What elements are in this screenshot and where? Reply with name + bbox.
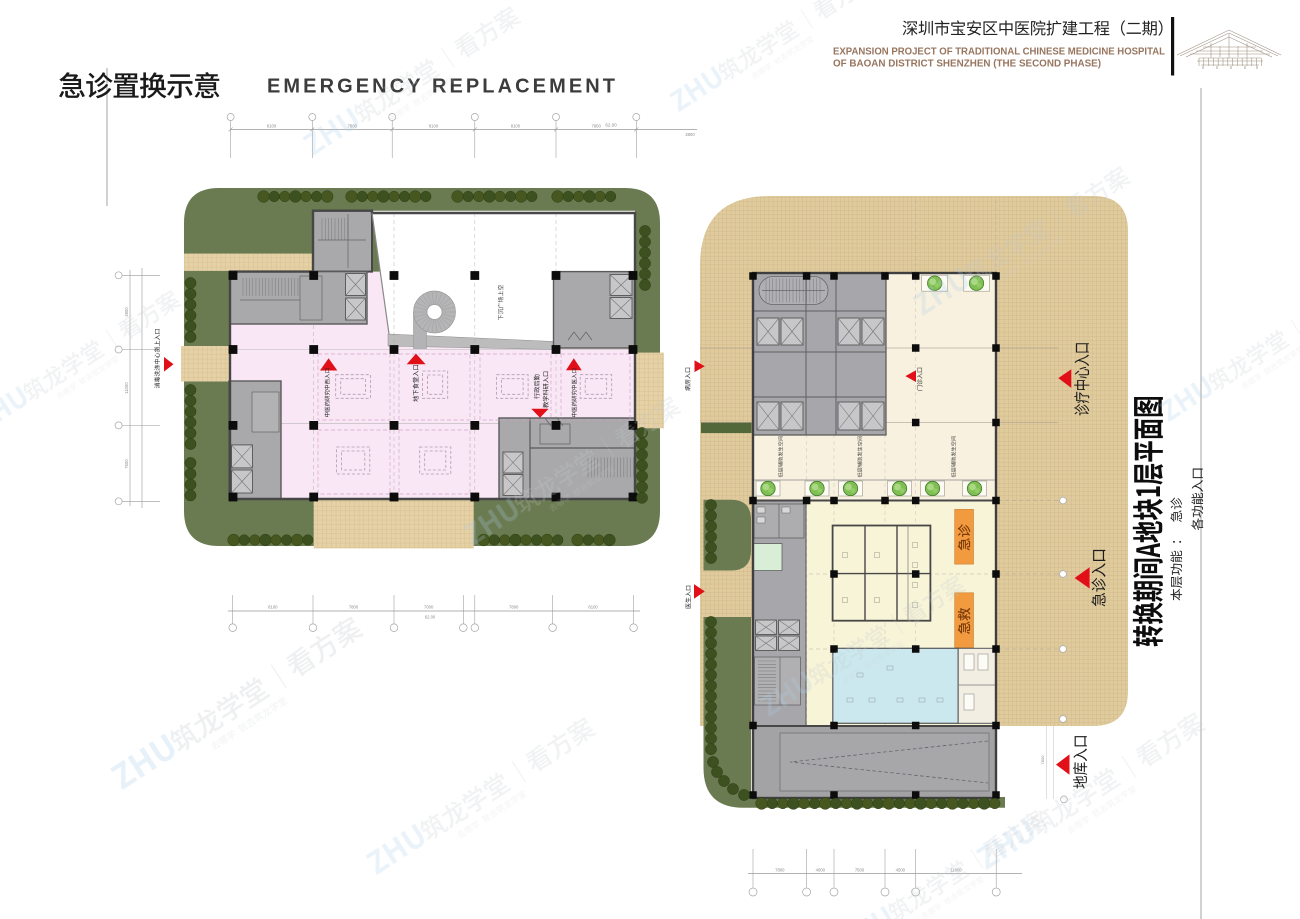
svg-text:62.00: 62.00	[425, 615, 436, 620]
svg-text:4900: 4900	[124, 307, 129, 317]
svg-text:7000: 7000	[424, 605, 434, 610]
svg-text:4000: 4000	[816, 868, 826, 873]
svg-text:OF BAOAN DISTRICT SHENZHEN (TH: OF BAOAN DISTRICT SHENZHEN (THE SECOND P…	[833, 59, 1101, 70]
svg-text:7600: 7600	[124, 459, 129, 469]
svg-text:62.00: 62.00	[605, 123, 617, 128]
svg-text:7800: 7800	[509, 605, 519, 610]
svg-text:7800: 7800	[349, 605, 359, 610]
svg-text:4500: 4500	[896, 868, 906, 873]
svg-text:11000: 11000	[124, 382, 129, 394]
svg-text:8100: 8100	[511, 124, 521, 129]
svg-text:7500: 7500	[855, 868, 865, 873]
svg-text:8100: 8100	[268, 605, 278, 610]
svg-text:7800: 7800	[591, 124, 601, 129]
svg-text:8100: 8100	[267, 124, 277, 129]
svg-text:2800: 2800	[685, 132, 695, 137]
svg-text:8100: 8100	[429, 124, 439, 129]
svg-text:EMERGENCY REPLACEMENT: EMERGENCY REPLACEMENT	[267, 76, 615, 98]
svg-text:8100: 8100	[588, 605, 598, 610]
svg-text:7800: 7800	[1040, 755, 1045, 765]
svg-text:7800: 7800	[775, 868, 785, 873]
svg-text:EXPANSION PROJECT OF TRADITION: EXPANSION PROJECT OF TRADITIONAL CHINESE…	[833, 47, 1165, 58]
